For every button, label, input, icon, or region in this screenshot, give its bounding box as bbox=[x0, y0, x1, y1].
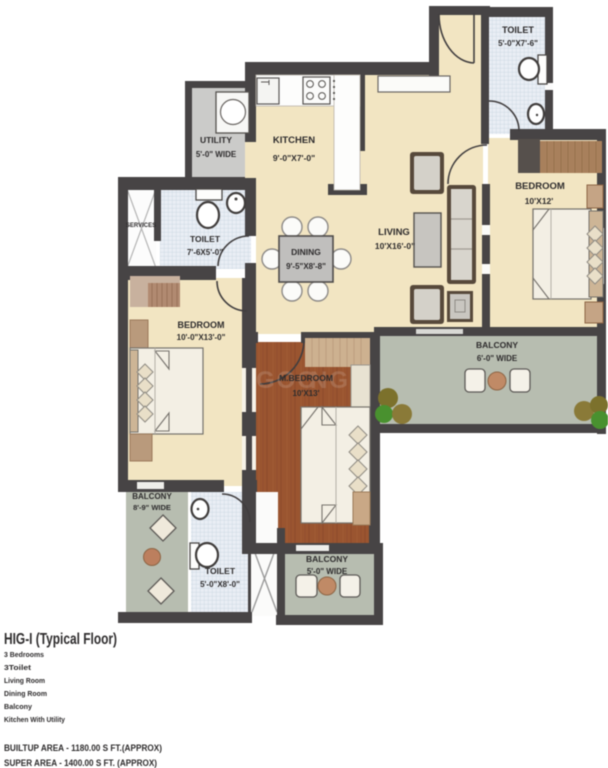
svg-text:SERVICES: SERVICES bbox=[126, 223, 156, 229]
svg-text:HIG-I (Typical Floor): HIG-I (Typical Floor) bbox=[4, 631, 117, 648]
svg-text:9'-0"X7'-0": 9'-0"X7'-0" bbox=[273, 153, 315, 163]
svg-text:BEDROOM: BEDROOM bbox=[178, 320, 225, 330]
svg-text:5'-0"X8'-0": 5'-0"X8'-0" bbox=[200, 580, 240, 589]
svg-text:BALCONY: BALCONY bbox=[132, 492, 172, 501]
svg-text:5'-0" WIDE: 5'-0" WIDE bbox=[307, 567, 348, 576]
svg-text:BEDROOM: BEDROOM bbox=[515, 181, 565, 192]
svg-text:Living Room: Living Room bbox=[4, 676, 45, 685]
svg-text:BALCONY: BALCONY bbox=[476, 340, 518, 350]
svg-text:Balcony: Balcony bbox=[4, 702, 33, 711]
svg-text:5'-0"X7'-6": 5'-0"X7'-6" bbox=[498, 39, 538, 48]
svg-text:6'-0" WIDE: 6'-0" WIDE bbox=[477, 354, 518, 363]
svg-text:7'-6X5'-0": 7'-6X5'-0" bbox=[187, 248, 223, 257]
svg-text:10'-0"X13'-0": 10'-0"X13'-0" bbox=[177, 333, 226, 342]
svg-text:10'X16'-0": 10'X16'-0" bbox=[375, 241, 415, 251]
svg-text:BALCONY: BALCONY bbox=[306, 554, 348, 564]
svg-text:TOILET: TOILET bbox=[190, 234, 221, 244]
svg-text:UTILITY: UTILITY bbox=[200, 135, 232, 145]
svg-text:10'X12': 10'X12' bbox=[525, 196, 554, 206]
svg-text:KITCHEN: KITCHEN bbox=[273, 135, 315, 146]
svg-text:SUPER AREA - 1400.00 S FT. (AP: SUPER AREA - 1400.00 S FT. (APPROX) bbox=[4, 758, 157, 768]
svg-text:5'-0" WIDE: 5'-0" WIDE bbox=[196, 150, 237, 159]
svg-text:Kitchen With Utility: Kitchen With Utility bbox=[4, 715, 66, 724]
svg-text:10'X13': 10'X13' bbox=[293, 389, 320, 398]
svg-text:TOILET: TOILET bbox=[205, 566, 236, 576]
svg-text:Dining Room: Dining Room bbox=[4, 689, 47, 698]
svg-text:M.BEDROOM: M.BEDROOM bbox=[279, 373, 333, 383]
svg-text:3 Bedrooms: 3 Bedrooms bbox=[4, 650, 44, 659]
svg-text:BUILTUP AREA - 1180.00 S FT.(A: BUILTUP AREA - 1180.00 S FT.(APPROX) bbox=[4, 743, 162, 754]
svg-text:LIVING: LIVING bbox=[378, 227, 410, 238]
svg-text:TOILET: TOILET bbox=[502, 25, 534, 35]
svg-text:DINING: DINING bbox=[291, 247, 321, 257]
svg-text:3Toilet: 3Toilet bbox=[4, 663, 32, 672]
svg-text:9'-5"X8'-8": 9'-5"X8'-8" bbox=[286, 262, 326, 271]
svg-text:8'-9" WIDE: 8'-9" WIDE bbox=[133, 503, 171, 512]
